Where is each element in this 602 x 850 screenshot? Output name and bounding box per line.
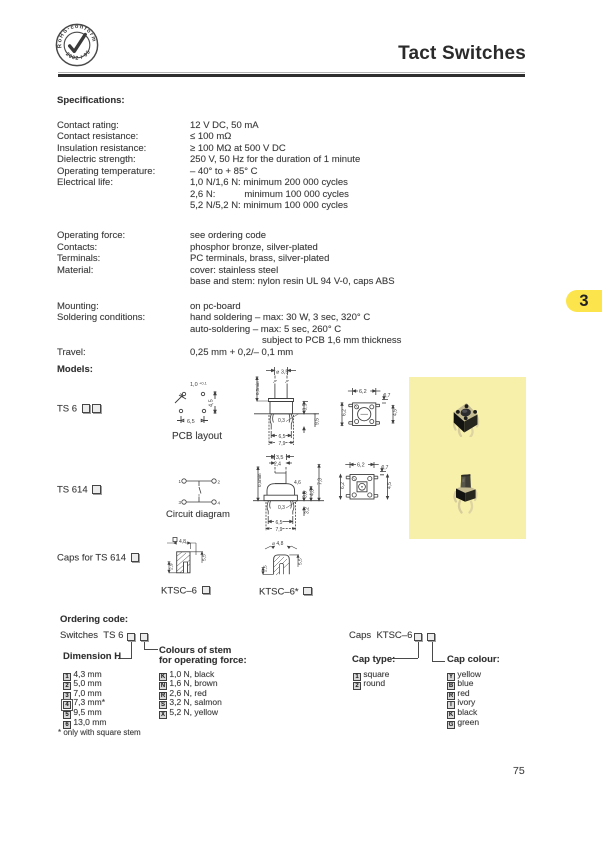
svg-text:4,8: 4,8 <box>179 539 186 545</box>
svg-text:6,2: 6,2 <box>340 482 346 489</box>
svg-text:7,9: 7,9 <box>279 441 286 447</box>
svg-text:2,5: 2,5 <box>263 565 269 572</box>
svg-text:3,5: 3,5 <box>303 403 309 410</box>
svg-text:6,2: 6,2 <box>357 463 365 469</box>
svg-text:0,5min: 0,5min <box>257 473 262 487</box>
svg-text:6,5: 6,5 <box>276 520 283 526</box>
svg-text:7,9: 7,9 <box>276 527 283 533</box>
svg-text:4,5: 4,5 <box>387 482 392 489</box>
svg-text:6,2: 6,2 <box>342 409 348 416</box>
svg-text:5,5: 5,5 <box>202 554 208 561</box>
svg-text:7,3: 7,3 <box>318 478 324 485</box>
svg-text:+0,1: +0,1 <box>199 381 208 386</box>
svg-text:4: 4 <box>218 501 221 506</box>
svg-text:2,4: 2,4 <box>274 462 281 468</box>
svg-text:0,3: 0,3 <box>278 505 285 511</box>
svg-text:6,2: 6,2 <box>359 389 367 395</box>
svg-text:3,5: 3,5 <box>303 491 309 498</box>
svg-text:4,6: 4,6 <box>294 480 301 486</box>
svg-text:4,5: 4,5 <box>393 409 399 416</box>
svg-text:0,3: 0,3 <box>278 418 285 424</box>
svg-text:4,3: 4,3 <box>310 489 316 496</box>
svg-text:9,5: 9,5 <box>315 418 321 425</box>
svg-text:0,5min: 0,5min <box>255 381 260 395</box>
svg-text:3,2: 3,2 <box>305 507 311 514</box>
svg-text:4,5: 4,5 <box>209 399 215 407</box>
svg-text:⌀ 3,5: ⌀ 3,5 <box>276 370 289 376</box>
svg-text:6,5: 6,5 <box>187 419 195 425</box>
svg-text:5,5: 5,5 <box>298 558 304 565</box>
svg-text:2,9: 2,9 <box>169 563 175 570</box>
svg-text:2: 2 <box>218 480 221 485</box>
svg-text:6,5: 6,5 <box>279 434 286 440</box>
svg-text:1,0: 1,0 <box>190 382 198 388</box>
svg-text:1: 1 <box>179 479 182 484</box>
svg-text:3: 3 <box>179 500 182 505</box>
